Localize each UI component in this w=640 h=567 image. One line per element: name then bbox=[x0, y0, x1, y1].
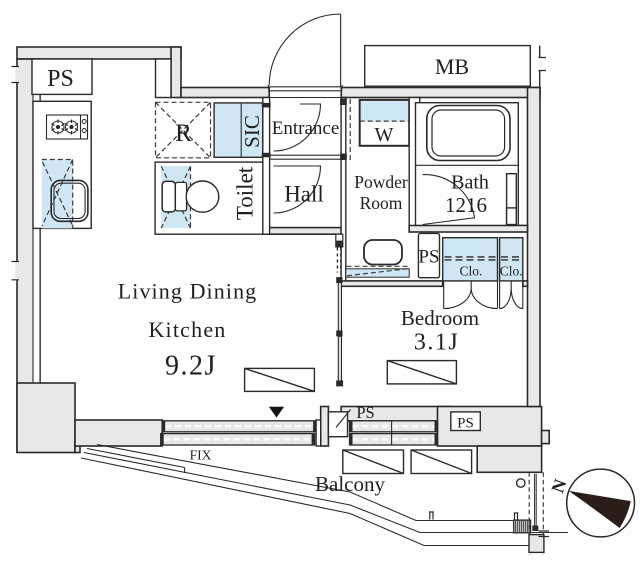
svg-text:Clo.: Clo. bbox=[500, 264, 523, 279]
svg-text:9.2J: 9.2J bbox=[165, 351, 217, 382]
svg-text:Clo.: Clo. bbox=[460, 264, 483, 279]
svg-text:W: W bbox=[375, 124, 394, 146]
svg-text:Hall: Hall bbox=[284, 182, 324, 207]
svg-text:SIC: SIC bbox=[240, 115, 264, 148]
svg-text:FIX: FIX bbox=[190, 448, 212, 463]
svg-text:PS: PS bbox=[418, 247, 439, 268]
svg-text:Bath: Bath bbox=[451, 172, 489, 194]
svg-text:3.1J: 3.1J bbox=[414, 330, 459, 356]
svg-text:Toilet: Toilet bbox=[233, 166, 258, 220]
svg-text:Room: Room bbox=[360, 193, 403, 213]
svg-text:PS: PS bbox=[457, 416, 474, 432]
svg-text:Living Dining: Living Dining bbox=[118, 279, 258, 304]
svg-text:Powder: Powder bbox=[354, 172, 408, 192]
svg-text:Entrance: Entrance bbox=[272, 118, 340, 139]
svg-text:Kitchen: Kitchen bbox=[148, 317, 226, 342]
svg-text:Bedroom: Bedroom bbox=[401, 306, 479, 330]
svg-text:Balcony: Balcony bbox=[315, 472, 385, 496]
svg-text:MB: MB bbox=[435, 54, 469, 79]
svg-text:R: R bbox=[175, 120, 192, 147]
svg-text:PS: PS bbox=[47, 66, 74, 92]
svg-text:PS: PS bbox=[356, 403, 374, 422]
